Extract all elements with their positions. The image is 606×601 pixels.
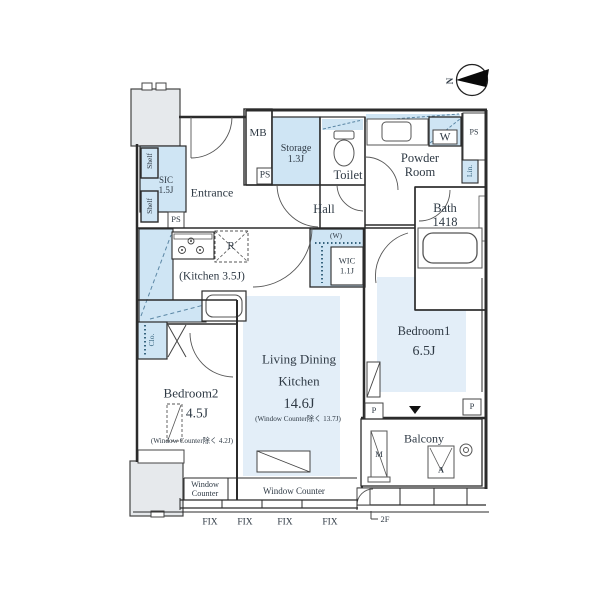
pillar-label-left: P xyxy=(372,406,377,416)
sliding-door-marker xyxy=(367,362,380,397)
fridge-label: R xyxy=(227,240,234,252)
window-counter-small-label: WindowCounter xyxy=(191,480,219,498)
window-counter-label: Window Counter xyxy=(263,486,325,496)
structural-column-top-left xyxy=(131,83,180,146)
fix-label-2: FIX xyxy=(237,518,252,529)
wic-label: WIC1.1J xyxy=(339,256,356,275)
tv-counter-icon xyxy=(257,451,310,472)
bedroom2-fixtures xyxy=(138,404,184,463)
bedroom1-name: Bedroom1 xyxy=(398,324,451,338)
bath-label: Bath1418 xyxy=(433,201,458,229)
bedroom1-size: 6.5J xyxy=(413,344,436,360)
kitchen-sink-icon xyxy=(202,291,246,321)
floorplan: MB PS Storage1.3J Toilet PowderRoom W PS… xyxy=(0,0,606,601)
fix-label-4: FIX xyxy=(322,518,337,529)
ps-label-mb: PS xyxy=(260,171,271,182)
entrance-label: Entrance xyxy=(191,186,234,199)
ldk-size: 14.6J xyxy=(283,396,314,412)
ldk-name-line1: Living Dining xyxy=(262,353,336,368)
closet xyxy=(138,322,186,359)
balcony-label: Balcony xyxy=(404,432,444,445)
pillar-label-right: P xyxy=(470,402,475,412)
drain-icon xyxy=(460,444,472,456)
hall-label: Hall xyxy=(313,202,335,216)
aircon-label: A xyxy=(438,467,444,476)
kitchen-label: (Kitchen 3.5J) xyxy=(179,271,245,284)
washer-label: W xyxy=(440,132,451,145)
shelf-label-top: Shelf xyxy=(146,153,154,169)
bedroom2-note: (Window Counter除く 4.2J) xyxy=(151,437,233,445)
powder-room-label: PowderRoom xyxy=(401,151,439,179)
linen-label: Lin. xyxy=(466,165,474,177)
meter-label: M xyxy=(375,450,383,460)
ldk-name-line2: Kitchen xyxy=(278,375,319,390)
shelf-label-bottom: Shelf xyxy=(146,198,154,214)
closet-label: Clo. xyxy=(148,334,156,347)
wic-w-label: (W) xyxy=(330,232,342,240)
pillar-boxes xyxy=(365,399,481,419)
bathtub-icon xyxy=(418,228,482,268)
fix-label-1: FIX xyxy=(202,518,217,529)
stove-icon xyxy=(172,232,214,259)
bedroom2-name: Bedroom2 xyxy=(164,387,219,402)
toilet-icon xyxy=(334,131,354,166)
sic-label: SIC1.5J xyxy=(159,175,174,195)
mb-label: MB xyxy=(249,127,266,139)
vanity-sink-icon xyxy=(367,119,428,145)
entry-direction-marker xyxy=(409,406,421,414)
floorplan-drawing xyxy=(0,0,606,601)
floor-2f-label: 2F xyxy=(381,515,390,525)
ps-label-sic: PS xyxy=(171,215,180,225)
bedroom2-size: 4.5J xyxy=(186,405,208,420)
structural-column-bottom-left xyxy=(130,461,183,517)
compass-north-icon xyxy=(456,65,489,96)
compass-n-label: N xyxy=(445,78,455,85)
toilet-label: Toilet xyxy=(334,168,363,182)
ps-label-right: PS xyxy=(470,129,479,138)
fix-label-3: FIX xyxy=(277,518,292,529)
storage-label: Storage1.3J xyxy=(281,143,312,165)
ldk-note: (Window Counter除く 13.7J) xyxy=(255,415,341,423)
